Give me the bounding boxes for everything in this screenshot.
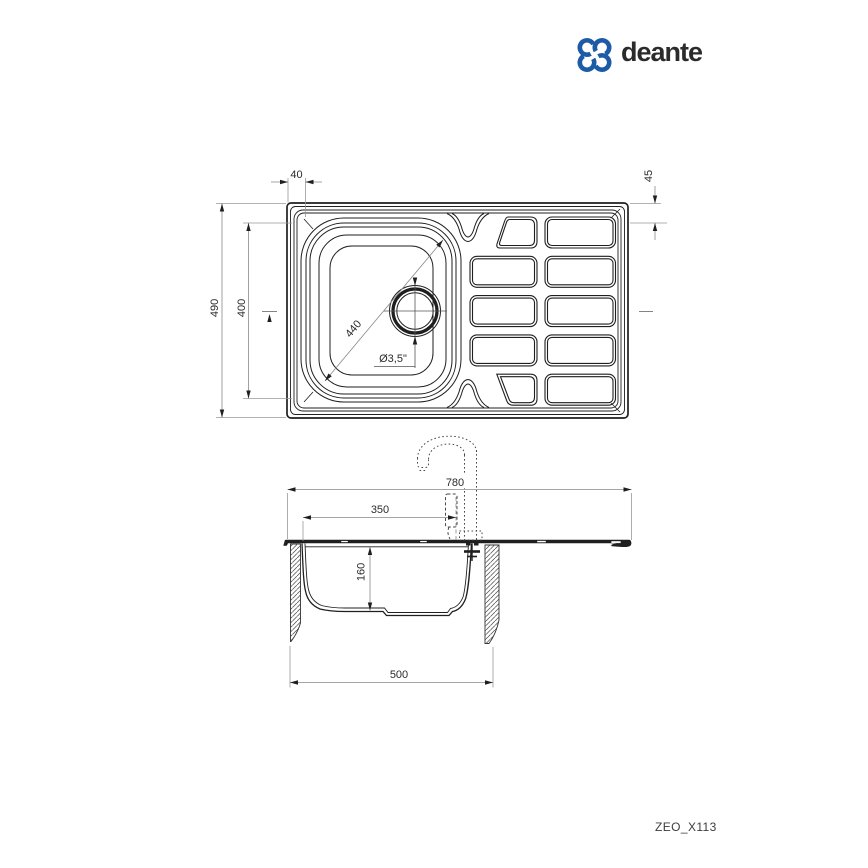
- dim-40-label: 40: [290, 169, 302, 181]
- dim-500: 500: [290, 646, 493, 688]
- dim-45: 45: [630, 170, 667, 240]
- dim-160: 160: [356, 547, 373, 611]
- top-view: 40 45 490 400: [209, 169, 667, 418]
- countertop-profile: [283, 540, 631, 547]
- dim-440-label: 440: [343, 318, 364, 340]
- centerline-mark-left: [262, 312, 277, 323]
- drain-diameter-label: Ø3,5": [379, 353, 407, 365]
- dim-45-label: 45: [643, 170, 655, 182]
- faucet-base: [460, 531, 483, 540]
- dim-490-label: 490: [209, 299, 221, 317]
- dim-500-label: 500: [390, 669, 408, 681]
- product-code: ZEO_X113: [655, 820, 717, 834]
- bowl-section: [302, 544, 472, 616]
- cabinet-wall-left: [291, 544, 301, 642]
- dim-160-label: 160: [356, 563, 368, 581]
- drainer-grid: [447, 214, 616, 408]
- drainer-groove: [545, 217, 616, 405]
- cabinet-wall-right: [485, 545, 499, 644]
- deante-logo-icon: [577, 38, 612, 73]
- dim-400: 400: [236, 223, 292, 399]
- logo-wordmark: deante: [621, 37, 703, 67]
- dim-400-label: 400: [236, 299, 248, 317]
- corner-tick: [304, 392, 313, 402]
- drainer-wave-top: [447, 214, 489, 242]
- section-view: 780 350 160 500: [283, 436, 631, 687]
- drainer-groove-slanted: [497, 217, 537, 248]
- corner-tick: [304, 219, 313, 229]
- technical-drawing: deante: [0, 0, 868, 868]
- dim-350-label: 350: [371, 504, 389, 516]
- faucet-bolt: [464, 541, 480, 562]
- faucet-handle: [446, 494, 458, 527]
- dim-350: 350: [303, 497, 456, 541]
- drawing-page: deante: [0, 0, 868, 868]
- drainer-groove-slanted: [497, 374, 537, 405]
- brand-logo: deante: [577, 37, 703, 72]
- dim-780: 780: [288, 475, 632, 540]
- dim-780-label: 780: [446, 477, 464, 489]
- drainer-groove: [470, 256, 537, 366]
